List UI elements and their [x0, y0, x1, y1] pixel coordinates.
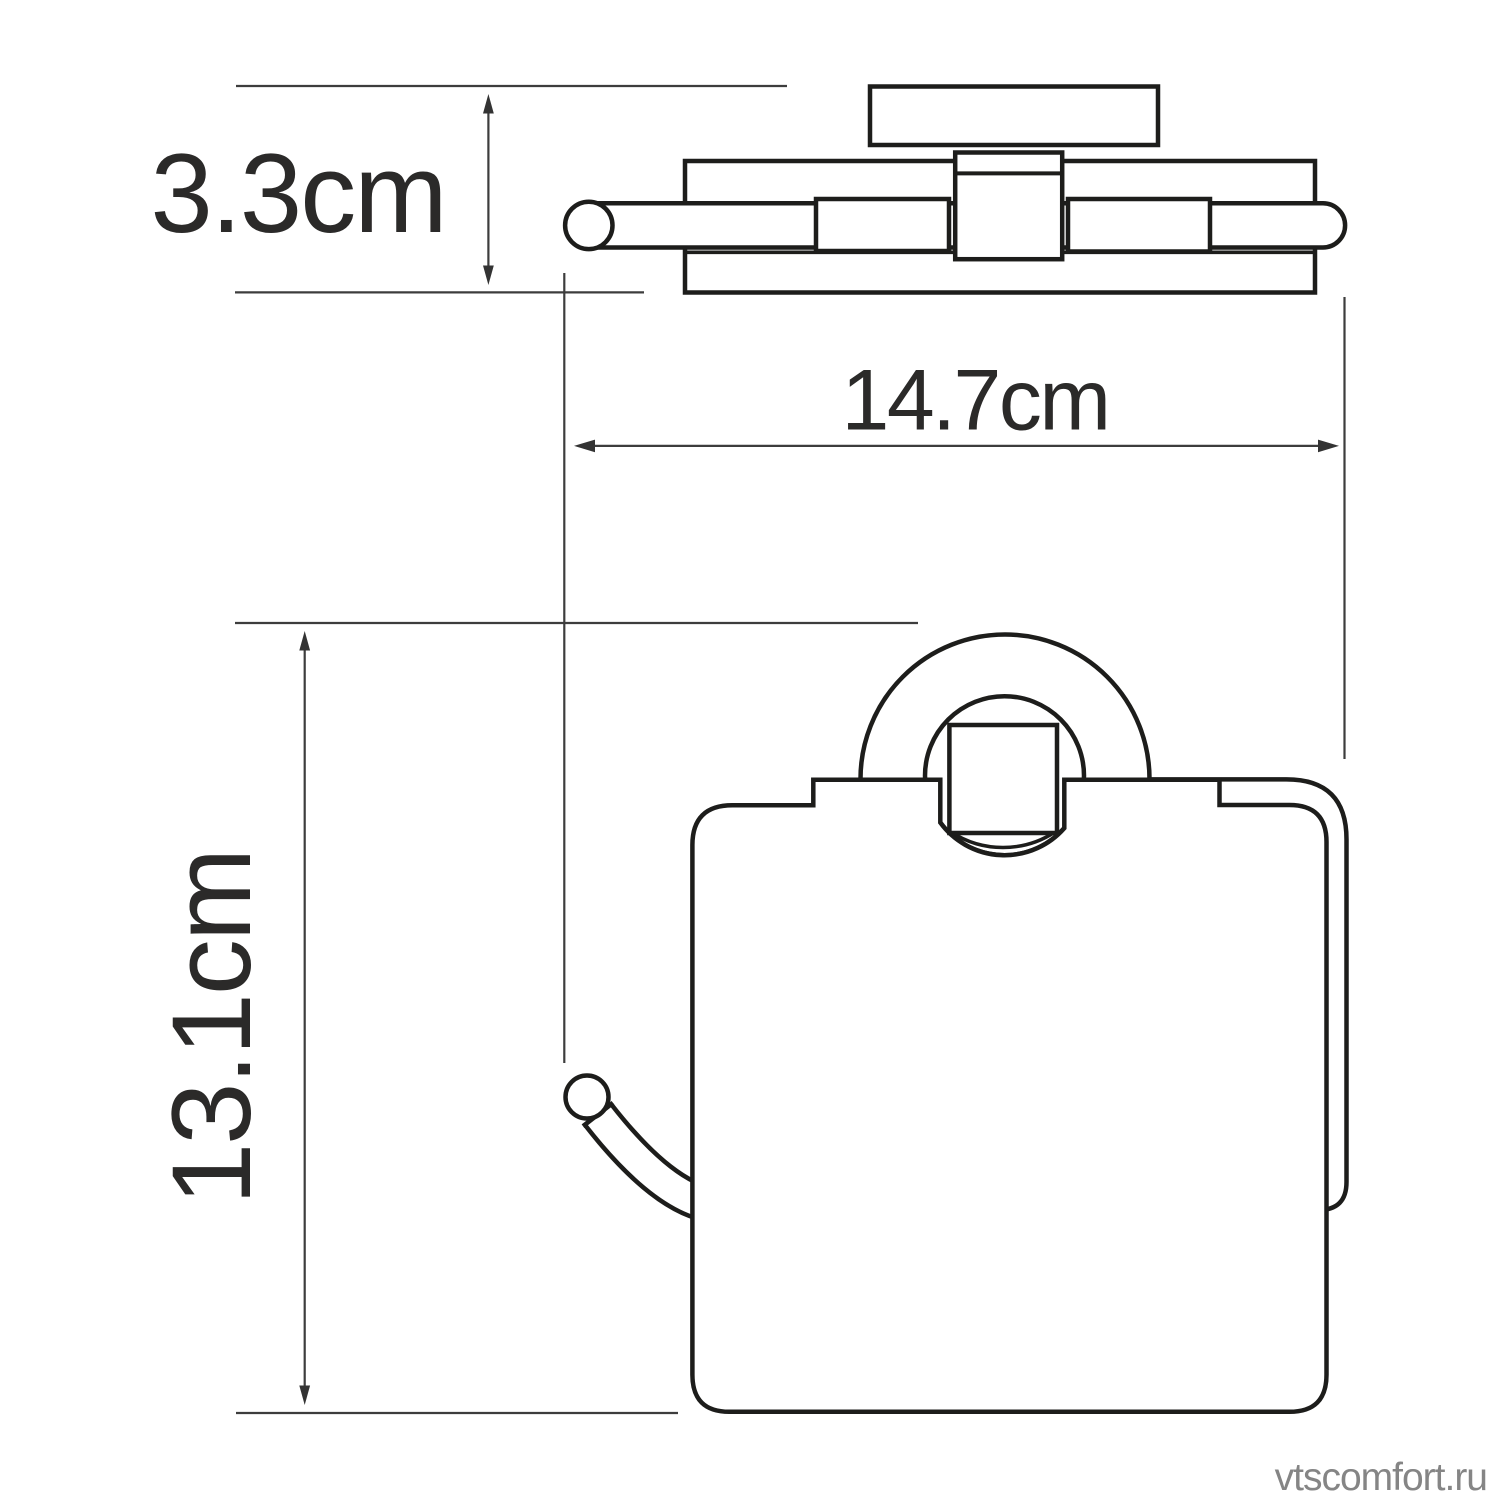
svg-text:3.3cm: 3.3cm [151, 131, 446, 256]
svg-text:vtscomfort.ru: vtscomfort.ru [1275, 1456, 1487, 1499]
svg-text:13.1cm: 13.1cm [149, 850, 274, 1205]
svg-text:14.7cm: 14.7cm [841, 353, 1108, 449]
